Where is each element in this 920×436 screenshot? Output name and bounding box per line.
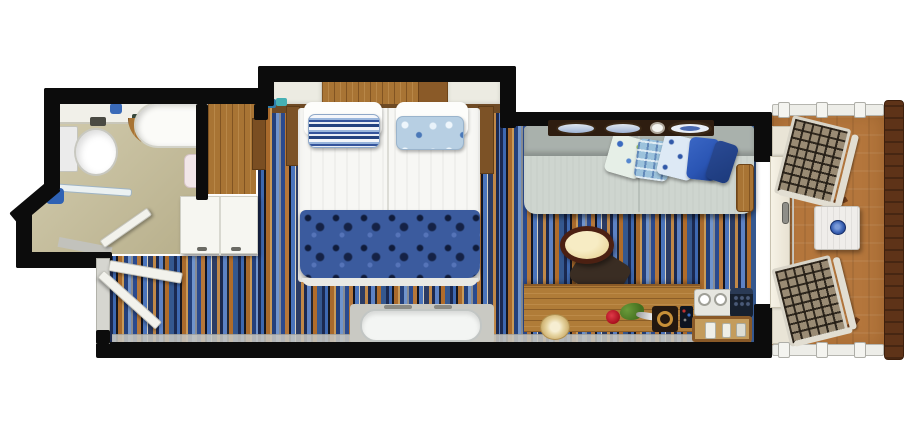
bench-cushion [360, 309, 482, 342]
wall-alcove-top [258, 66, 516, 82]
sofa-armrest [736, 164, 754, 212]
sun-hat [540, 314, 570, 340]
wall-top-bath [44, 88, 272, 104]
nightstand-right [478, 106, 494, 174]
telephone [730, 288, 753, 318]
soap-dish [90, 117, 106, 126]
rose [606, 310, 620, 324]
rail-post-b2 [816, 342, 828, 358]
wall-bath-divider [196, 104, 208, 200]
mattress-foot [302, 278, 478, 286]
rail-post-t3 [854, 102, 866, 118]
faucet-icon [110, 103, 122, 114]
bottle-1 [705, 322, 716, 339]
toilet-bowl [74, 128, 118, 176]
frame-ring [657, 311, 673, 327]
wall-plate-1 [556, 122, 596, 135]
closet-floor [208, 100, 256, 194]
wall-bottom [96, 342, 772, 358]
teacup-2 [714, 293, 727, 306]
bathtub [134, 102, 202, 148]
closet-panel [252, 118, 266, 170]
bench-mark-1 [384, 305, 412, 309]
wall-plate-3 [668, 121, 712, 136]
wall-bath-left [44, 88, 60, 190]
balcony-table [814, 206, 860, 250]
wall-closet-right [254, 104, 268, 120]
bowl [830, 220, 846, 235]
wood-railing [884, 100, 904, 360]
wardrobe-handle-right [231, 247, 241, 251]
wall-plate-2 [604, 122, 642, 135]
wall-cup [650, 122, 665, 134]
entry-wall-corner [96, 330, 110, 344]
wall-right-upper [754, 112, 772, 162]
pillow-striped [308, 114, 380, 148]
floor-plan [0, 0, 920, 436]
bottle-2 [722, 323, 731, 338]
desk-chair-seat [560, 226, 614, 264]
rail-post-t2 [816, 102, 828, 118]
bench-mark-2 [434, 305, 452, 309]
picture-frame [652, 306, 678, 332]
wardrobe-handle-left [197, 247, 207, 251]
rail-post-b3 [854, 342, 866, 358]
door-handle [782, 202, 789, 224]
wardrobe [180, 196, 258, 254]
minibar-tray [692, 316, 752, 342]
wardrobe-divider [219, 197, 221, 255]
shelf-item-teal [276, 98, 287, 106]
bed-runner [300, 210, 480, 278]
glass [736, 323, 746, 337]
pillow-floral [396, 116, 464, 150]
teacup-1 [698, 293, 711, 306]
